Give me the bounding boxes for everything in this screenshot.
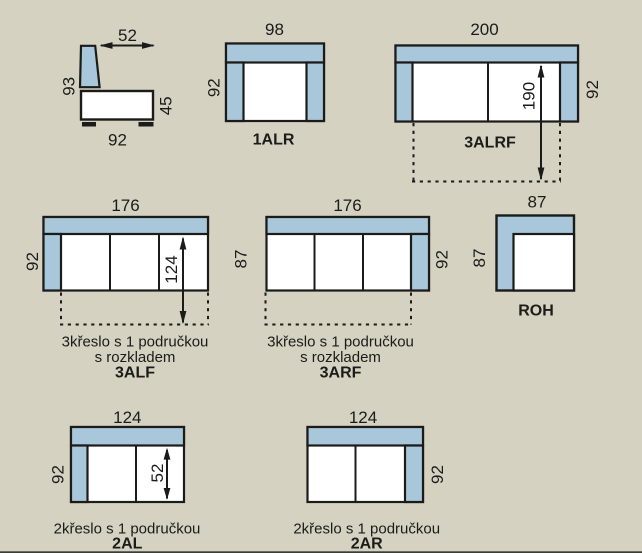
svg-text:124: 124 — [113, 408, 141, 427]
svg-text:52: 52 — [148, 464, 167, 483]
svg-text:2AL: 2AL — [112, 536, 142, 553]
svg-text:87: 87 — [528, 193, 547, 212]
svg-text:124: 124 — [349, 408, 377, 427]
svg-text:3křeslo s 1 područkou: 3křeslo s 1 područkou — [62, 333, 209, 350]
svg-text:92: 92 — [428, 465, 447, 484]
svg-text:176: 176 — [333, 196, 361, 215]
svg-text:124: 124 — [162, 255, 181, 283]
svg-text:176: 176 — [111, 196, 139, 215]
svg-text:92: 92 — [108, 130, 127, 149]
svg-text:52: 52 — [118, 26, 137, 45]
svg-text:45: 45 — [157, 96, 176, 115]
svg-text:92: 92 — [583, 80, 602, 99]
svg-text:92: 92 — [433, 250, 452, 269]
svg-text:92: 92 — [205, 78, 224, 97]
svg-text:93: 93 — [60, 77, 79, 96]
svg-text:s rozkladem: s rozkladem — [95, 349, 176, 366]
svg-text:1ALR: 1ALR — [253, 131, 295, 148]
svg-text:190: 190 — [520, 82, 539, 110]
svg-text:87: 87 — [232, 250, 251, 269]
svg-text:2AR: 2AR — [351, 536, 383, 553]
svg-text:s rozkladem: s rozkladem — [300, 349, 381, 366]
svg-text:98: 98 — [265, 20, 284, 39]
svg-text:3křeslo s 1 područkou: 3křeslo s 1 područkou — [267, 333, 414, 350]
svg-text:3ALF: 3ALF — [115, 364, 155, 381]
svg-text:92: 92 — [48, 465, 67, 484]
svg-text:3ARF: 3ARF — [320, 364, 362, 381]
svg-text:200: 200 — [470, 20, 498, 39]
svg-text:92: 92 — [23, 252, 42, 271]
svg-text:87: 87 — [470, 249, 489, 268]
svg-text:ROH: ROH — [518, 302, 554, 319]
svg-text:3ALRF: 3ALRF — [464, 135, 516, 152]
